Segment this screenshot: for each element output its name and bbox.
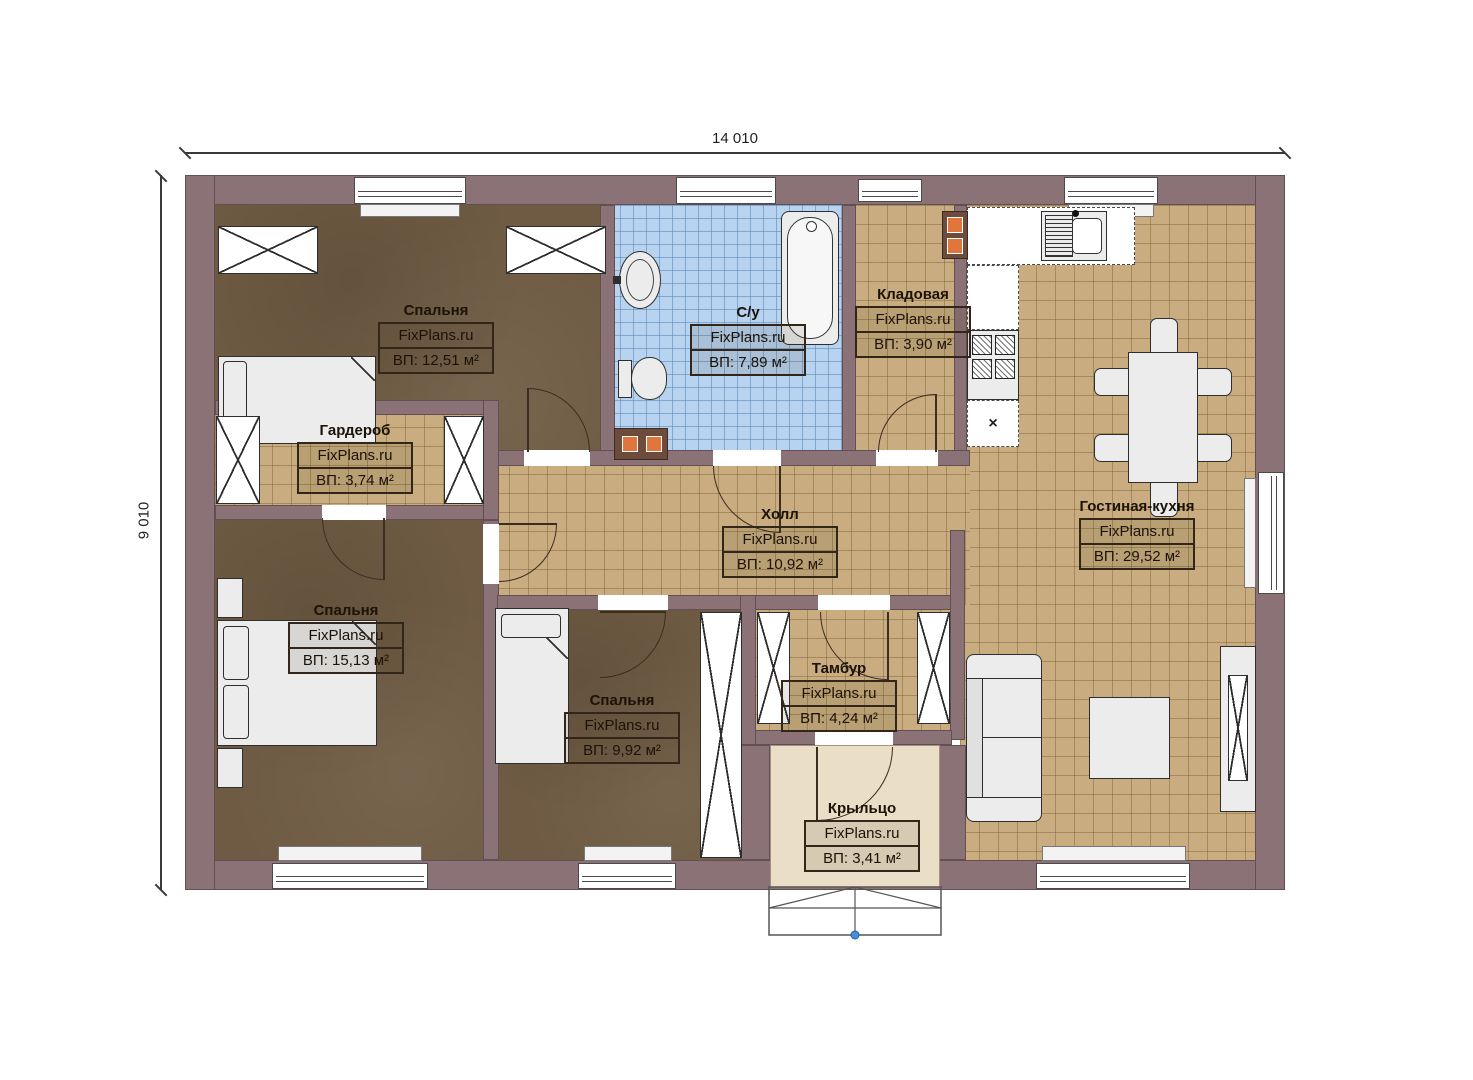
chair: [1196, 434, 1232, 462]
wall-porch-right: [938, 745, 966, 860]
toilet-tank: [618, 360, 632, 398]
door-leaf: [383, 518, 385, 580]
room-name: Гардероб: [289, 422, 421, 439]
sofa-armrest: [967, 655, 1041, 679]
drainboard: [1045, 215, 1073, 257]
room-area: ВП: 12,51 м²: [380, 349, 492, 372]
dimension-height-label: 9 010: [136, 489, 153, 553]
room-info-box: FixPlans.ru ВП: 4,24 м²: [781, 680, 897, 732]
room-name: Холл: [714, 506, 846, 523]
boiler-unit: [614, 428, 668, 460]
sofa-cushion: [983, 679, 1041, 738]
room-info-box: FixPlans.ru ВП: 3,90 м²: [855, 306, 971, 358]
dimension-width-label: 14 010: [650, 130, 820, 147]
watermark: FixPlans.ru: [783, 682, 895, 707]
opening-front-door: [815, 730, 893, 745]
room-info-box: FixPlans.ru ВП: 15,13 м²: [288, 622, 404, 674]
window-bedroom-mid: [578, 863, 676, 889]
room-label-porch: Крыльцо FixPlans.ru ВП: 3,41 м²: [796, 800, 928, 872]
window-bedroom-top: [354, 177, 466, 204]
closet: [218, 226, 318, 274]
room-info-box: FixPlans.ru ВП: 12,51 м²: [378, 322, 494, 374]
washbasin: [619, 251, 661, 309]
watermark: FixPlans.ru: [380, 324, 492, 349]
blanket-fold: [546, 637, 568, 659]
window-sill: [584, 846, 672, 861]
closet: [917, 612, 950, 724]
room-area: ВП: 3,90 м²: [857, 333, 969, 356]
dimension-line-left: [160, 175, 162, 890]
wall-wardrobe-right: [483, 400, 499, 520]
watermark: FixPlans.ru: [724, 528, 836, 553]
room-label-bedroom-left: Спальня FixPlans.ru ВП: 15,13 м²: [280, 602, 412, 674]
faucet: [1072, 210, 1079, 217]
tv-stand: [1220, 646, 1256, 812]
room-name: Гостиная-кухня: [1071, 498, 1203, 515]
watermark: FixPlans.ru: [1081, 520, 1193, 545]
dining-table: [1128, 352, 1198, 483]
floor-plan: ×: [0, 0, 1473, 1080]
room-name: Тамбур: [773, 660, 905, 677]
room-label-bedroom-mid: Спальня FixPlans.ru ВП: 9,92 м²: [556, 692, 688, 764]
opening-bedroom-top: [524, 450, 590, 466]
watermark: FixPlans.ru: [806, 822, 918, 847]
room-area: ВП: 15,13 м²: [290, 649, 402, 672]
opening-bedroom-left: [483, 524, 499, 584]
room-area: ВП: 9,92 м²: [566, 739, 678, 762]
watermark: FixPlans.ru: [299, 444, 411, 469]
dimension-line-top: [185, 152, 1285, 154]
chair: [1094, 368, 1130, 396]
room-name: Крыльцо: [796, 800, 928, 817]
wall-porch-left: [740, 745, 770, 860]
opening-vestibule: [818, 595, 890, 610]
wall-exterior-left: [185, 175, 215, 890]
closet: [444, 416, 484, 504]
door-leaf: [527, 388, 529, 452]
room-area: ВП: 7,89 м²: [692, 351, 804, 374]
pillow: [223, 626, 249, 680]
room-name: Спальня: [280, 602, 412, 619]
room-label-living-kitchen: Гостиная-кухня FixPlans.ru ВП: 29,52 м²: [1071, 498, 1203, 570]
room-info-box: FixPlans.ru ВП: 3,74 м²: [297, 442, 413, 494]
opening-bathroom: [713, 450, 781, 466]
room-area: ВП: 4,24 м²: [783, 707, 895, 730]
room-area: ВП: 3,74 м²: [299, 469, 411, 492]
chair: [1094, 434, 1130, 462]
chair: [1196, 368, 1232, 396]
closet: [506, 226, 606, 274]
room-name: Спальня: [556, 692, 688, 709]
built-in-wardrobe: [700, 612, 742, 858]
closet: [216, 416, 260, 504]
room-info-box: FixPlans.ru ВП: 9,92 м²: [564, 712, 680, 764]
watermark: FixPlans.ru: [290, 624, 402, 649]
watermark: FixPlans.ru: [566, 714, 678, 739]
room-name: Спальня: [370, 302, 502, 319]
nightstand: [217, 578, 243, 618]
room-label-bathroom: С/у FixPlans.ru ВП: 7,89 м²: [682, 304, 814, 376]
coffee-table: [1089, 697, 1170, 779]
sofa-armrest: [967, 797, 1041, 821]
watermark: FixPlans.ru: [857, 308, 969, 333]
sofa: [966, 654, 1042, 822]
kitchen-sink: [1041, 211, 1107, 261]
room-info-box: FixPlans.ru ВП: 29,52 м²: [1079, 518, 1195, 570]
room-area: ВП: 29,52 м²: [1081, 545, 1193, 568]
door-leaf: [600, 611, 666, 613]
wall-vestibule-right: [950, 530, 965, 740]
opening-bedroom-mid: [598, 595, 668, 610]
room-name: С/у: [682, 304, 814, 321]
window-sill: [1244, 478, 1256, 588]
window-sill: [278, 846, 422, 861]
window-living: [1036, 863, 1190, 889]
porch-steps: [768, 886, 942, 940]
window-vent-storage: [858, 179, 922, 202]
door-leaf: [935, 394, 937, 452]
wall-bedroommid-right: [740, 595, 756, 745]
tv-icon: [1228, 675, 1248, 781]
room-label-hall: Холл FixPlans.ru ВП: 10,92 м²: [714, 506, 846, 578]
room-info-box: FixPlans.ru ВП: 10,92 м²: [722, 526, 838, 578]
window-kitchen: [1064, 177, 1158, 204]
sofa-back: [967, 679, 983, 797]
watermark: FixPlans.ru: [692, 326, 804, 351]
washbasin-tap: [613, 276, 621, 284]
window-sill: [1042, 846, 1186, 861]
room-label-wardrobe: Гардероб FixPlans.ru ВП: 3,74 м²: [289, 422, 421, 494]
boiler-unit: [942, 211, 968, 259]
door-leaf: [499, 523, 557, 525]
cabinet-x-marker: ×: [988, 415, 997, 433]
room-area: ВП: 10,92 м²: [724, 553, 836, 576]
kitchen-cabinet-x: ×: [967, 400, 1019, 447]
room-label-storage: Кладовая FixPlans.ru ВП: 3,90 м²: [847, 286, 979, 358]
room-label-bedroom-top: Спальня FixPlans.ru ВП: 12,51 м²: [370, 302, 502, 374]
pillow: [501, 614, 561, 638]
nightstand: [217, 748, 243, 788]
room-info-box: FixPlans.ru ВП: 7,89 м²: [690, 324, 806, 376]
room-name: Кладовая: [847, 286, 979, 303]
room-label-vestibule: Тамбур FixPlans.ru ВП: 4,24 м²: [773, 660, 905, 732]
window-living-right: [1258, 472, 1284, 594]
window-bathroom: [676, 177, 776, 204]
opening-storage: [876, 450, 938, 466]
room-info-box: FixPlans.ru ВП: 3,41 м²: [804, 820, 920, 872]
window-sill: [360, 204, 460, 217]
pillow: [223, 685, 249, 739]
chair: [1150, 318, 1178, 354]
toilet-bowl: [631, 357, 667, 400]
sink-basin: [1072, 218, 1102, 254]
room-area: ВП: 3,41 м²: [806, 847, 918, 870]
window-bedroom-left: [272, 863, 428, 889]
